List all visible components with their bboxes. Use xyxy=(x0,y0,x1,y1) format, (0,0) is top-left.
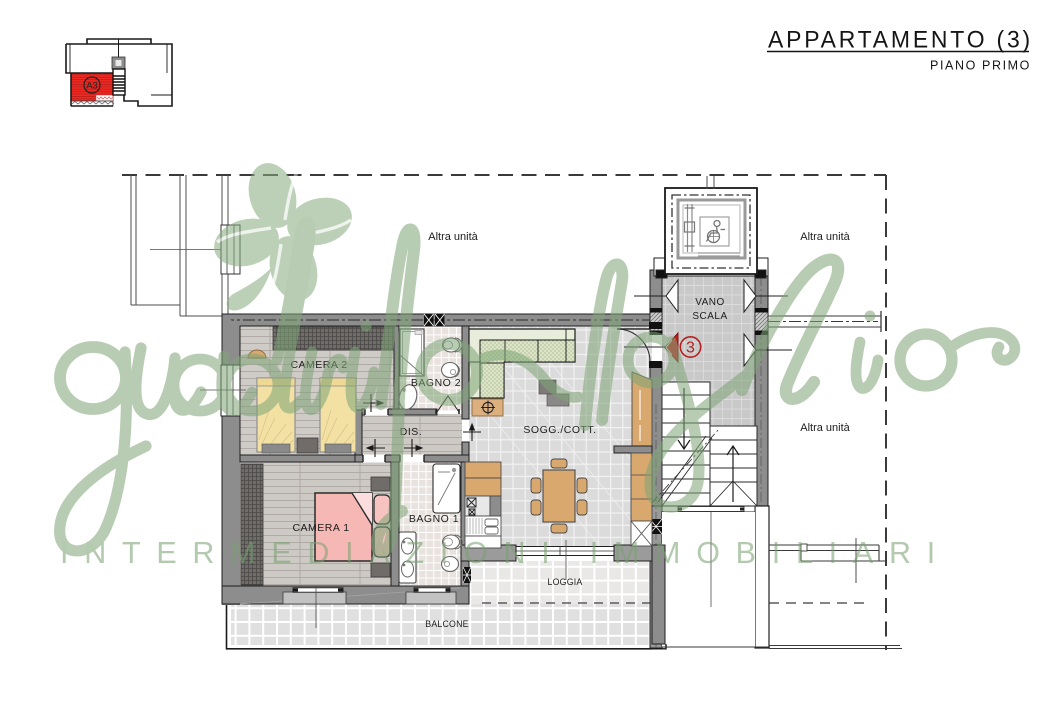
svg-text:3: 3 xyxy=(686,340,695,357)
svg-text:Altra unità: Altra unità xyxy=(428,231,478,243)
svg-text:A3: A3 xyxy=(86,81,98,92)
svg-text:PIANO PRIMO: PIANO PRIMO xyxy=(930,59,1031,73)
svg-text:APPARTAMENTO (3): APPARTAMENTO (3) xyxy=(768,27,1033,54)
svg-text:CAMERA 1: CAMERA 1 xyxy=(292,522,349,534)
svg-text:SCALA: SCALA xyxy=(692,311,727,322)
svg-text:INTERMEDIAZIONI IMMOBILIARI: INTERMEDIAZIONI IMMOBILIARI xyxy=(60,536,948,570)
svg-text:Altra unità: Altra unità xyxy=(800,422,850,434)
svg-text:BAGNO 1: BAGNO 1 xyxy=(409,513,459,525)
svg-text:LOGGIA: LOGGIA xyxy=(548,577,583,587)
svg-text:BALCONE: BALCONE xyxy=(425,619,468,629)
svg-text:Altra unità: Altra unità xyxy=(800,231,850,243)
svg-text:VANO: VANO xyxy=(695,297,725,308)
